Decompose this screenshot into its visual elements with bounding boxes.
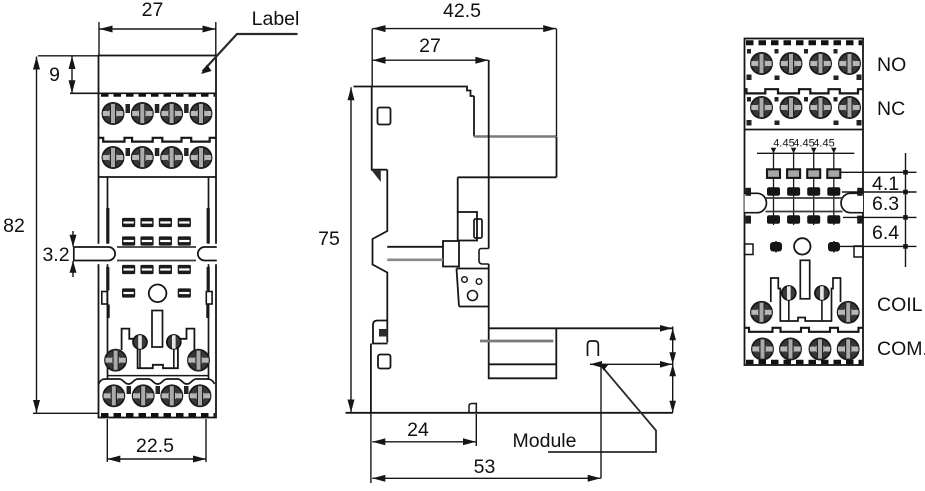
- svg-text:Module: Module: [513, 430, 577, 452]
- svg-text:24: 24: [407, 419, 429, 441]
- svg-text:NO: NO: [877, 54, 906, 76]
- svg-text:COM.: COM.: [877, 338, 925, 360]
- svg-text:3.2: 3.2: [42, 244, 69, 266]
- svg-text:6.3: 6.3: [872, 193, 899, 215]
- svg-text:4.1: 4.1: [872, 173, 899, 195]
- svg-text:22.5: 22.5: [136, 435, 174, 457]
- svg-text:Label: Label: [252, 8, 300, 30]
- svg-text:4.45: 4.45: [793, 138, 814, 150]
- svg-text:9: 9: [49, 64, 60, 86]
- svg-text:6.4: 6.4: [872, 222, 899, 244]
- svg-text:4.45: 4.45: [813, 138, 834, 150]
- svg-text:27: 27: [419, 35, 441, 57]
- svg-text:42.5: 42.5: [443, 0, 481, 22]
- svg-text:53: 53: [474, 456, 496, 478]
- svg-text:27: 27: [142, 0, 164, 21]
- svg-text:4.45: 4.45: [773, 138, 794, 150]
- svg-text:NC: NC: [877, 98, 905, 120]
- svg-text:COIL: COIL: [877, 294, 923, 316]
- svg-text:82: 82: [3, 215, 25, 237]
- svg-text:75: 75: [318, 228, 340, 250]
